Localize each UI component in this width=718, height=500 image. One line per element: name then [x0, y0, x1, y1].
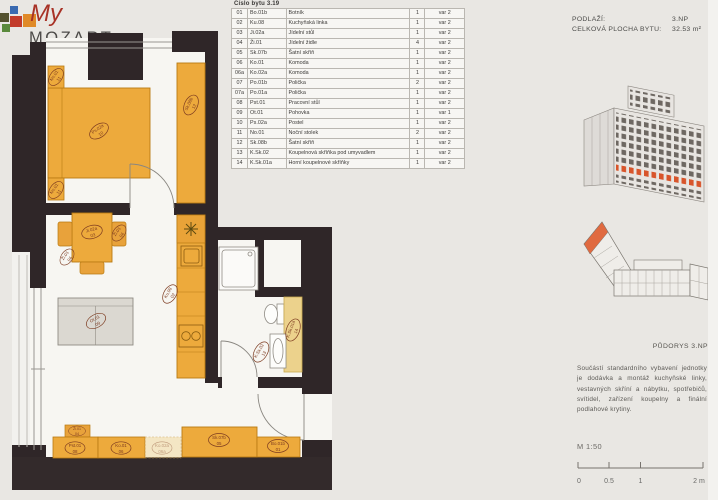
svg-text:Sk.07b: Sk.07b — [212, 435, 226, 440]
toilet — [265, 304, 285, 324]
washbasin — [270, 334, 286, 368]
chair-bottom — [80, 262, 104, 274]
cooktop-star-icon — [184, 222, 198, 236]
scale-tick-05: 0.5 — [604, 478, 614, 485]
kitchen-line — [177, 215, 205, 378]
area-label: CELKOVÁ PLOCHA BYTU: — [572, 26, 672, 33]
scale-tick-2m: 2 m — [693, 478, 705, 485]
sheet-edge — [708, 0, 718, 500]
svg-text:08: 08 — [73, 449, 78, 454]
building-left-face — [584, 108, 614, 186]
shower — [219, 247, 258, 290]
svg-text:06a: 06a — [158, 449, 166, 454]
key-plan-right-block — [690, 264, 708, 300]
bedroom-wardrobe — [177, 63, 205, 203]
scale-bar: 0 0.5 1 2 m — [575, 456, 715, 490]
svg-text:Ži.01: Ži.01 — [73, 426, 81, 431]
svg-text:01: 01 — [276, 447, 281, 452]
floor-plan: Ps.02a10 No.0111 No.0111 Sk.08b12 Ji.02a… — [0, 0, 560, 500]
svg-text:Pst.01: Pst.01 — [69, 443, 82, 448]
svg-text:Ko.02a: Ko.02a — [155, 443, 169, 448]
standard-equipment-note: Součástí standardního vybavení jednotky … — [577, 364, 707, 415]
svg-text:Bo.01b: Bo.01b — [271, 441, 285, 446]
svg-text:04: 04 — [75, 432, 79, 436]
svg-text:05: 05 — [217, 441, 222, 446]
key-plan-caption: PŮDORYS 3.NP — [616, 343, 708, 350]
svg-text:06: 06 — [119, 449, 124, 454]
sheet-header: PODLAŽÍ: 3.NP CELKOVÁ PLOCHA BYTU: 32.53… — [572, 16, 714, 36]
building-axonometry — [570, 80, 718, 208]
scale-label: M 1:50 — [577, 442, 602, 451]
building-main-face — [614, 108, 704, 202]
scale-tick-1: 1 — [639, 478, 643, 485]
chair-left — [58, 222, 72, 246]
scale-tick-0: 0 — [577, 478, 581, 485]
key-plan — [570, 208, 718, 338]
svg-text:Ko.01: Ko.01 — [115, 443, 127, 448]
floor-label: PODLAŽÍ: — [572, 16, 672, 23]
